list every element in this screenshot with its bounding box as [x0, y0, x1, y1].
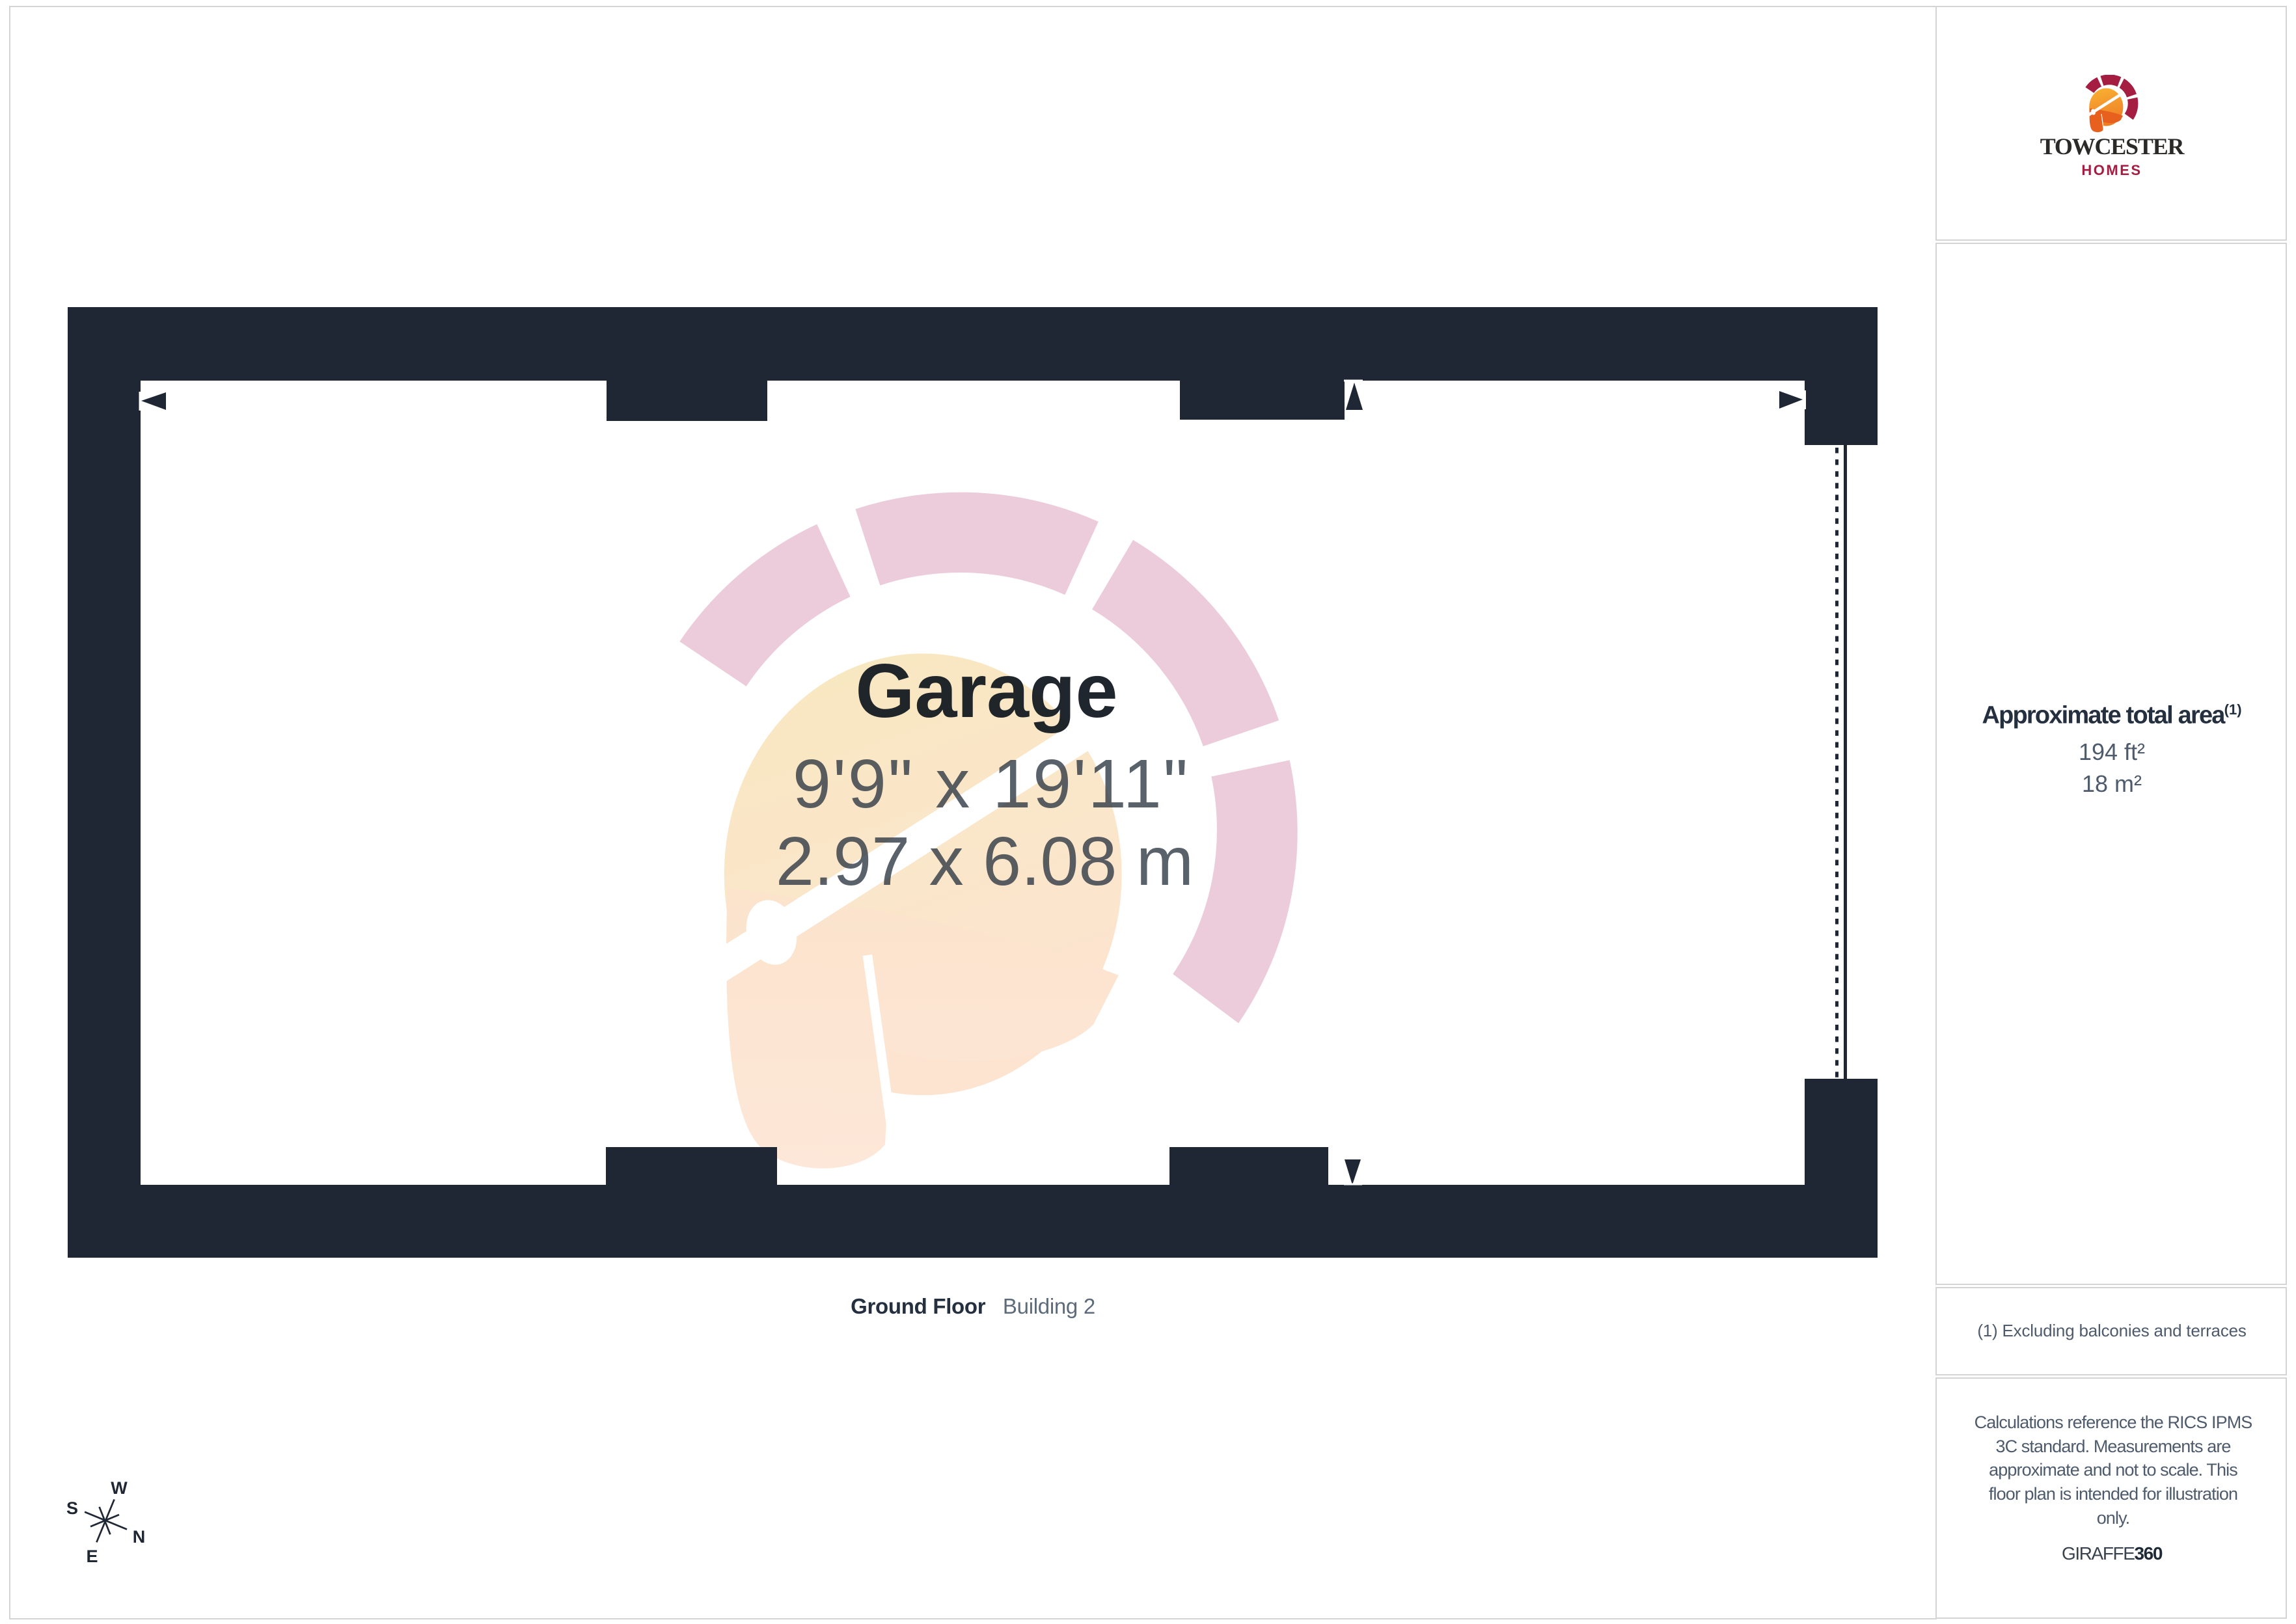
svg-text:E: E [86, 1547, 98, 1566]
svg-text:W: W [111, 1478, 128, 1498]
svg-text:Garage: Garage [855, 648, 1117, 733]
svg-text:9'9" x 19'11": 9'9" x 19'11" [793, 746, 1190, 822]
svg-text:S: S [66, 1498, 78, 1518]
svg-text:N: N [133, 1527, 146, 1547]
svg-text:2.97 x 6.08 m: 2.97 x 6.08 m [776, 823, 1194, 900]
